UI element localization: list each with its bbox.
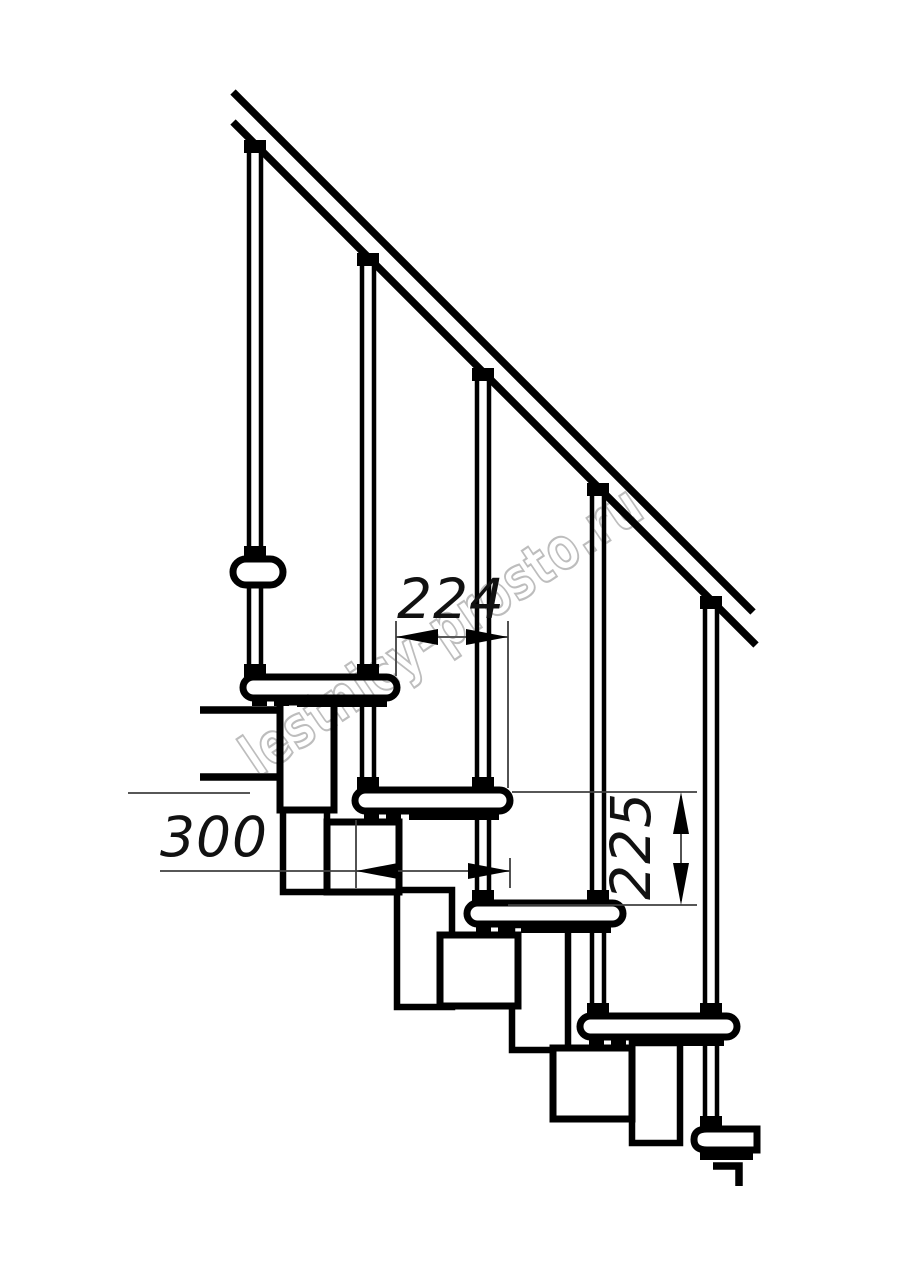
baluster-1 <box>249 150 261 677</box>
baluster-3-tread-connector <box>472 890 494 903</box>
support-module-2 <box>327 822 399 892</box>
baluster-2-tread-connector <box>357 777 379 790</box>
baluster-4 <box>592 492 604 1016</box>
tread-2 <box>355 790 510 811</box>
tread-bracket <box>233 559 283 585</box>
baluster-3-rail-connector <box>472 368 494 381</box>
baluster-1-tread-connector <box>244 664 266 677</box>
baluster-5-rail-connector <box>700 596 722 609</box>
baluster-1-bracket-connector <box>244 546 266 559</box>
drawing-svg: 224 300 225 lestnicy-prosto.ru <box>0 0 914 1280</box>
baluster-1-rail-connector <box>244 140 266 153</box>
baluster-3-cross-connector <box>472 777 494 790</box>
back-module-1 <box>283 808 327 892</box>
dimension-225: 225 <box>508 792 697 905</box>
baluster-5-tread-connector <box>700 1116 722 1129</box>
tread-4 <box>580 1016 737 1037</box>
baluster-2-rail-connector <box>357 253 379 266</box>
dimension-225-arrow-top <box>673 792 689 834</box>
tread-5 <box>694 1129 757 1150</box>
staircase-technical-drawing: 224 300 225 lestnicy-prosto.ru <box>0 0 914 1280</box>
dimension-225-label: 225 <box>599 792 663 900</box>
dimension-300-label: 300 <box>160 805 268 869</box>
support-module-3 <box>440 935 518 1006</box>
tread-3 <box>467 903 623 924</box>
back-module-4 <box>632 1043 680 1143</box>
handrail-top-edge <box>233 92 753 612</box>
baluster-5 <box>705 607 717 1129</box>
tread-mount-5-hook <box>713 1166 739 1186</box>
baluster-4-tread-connector <box>587 1003 609 1016</box>
support-module-4 <box>553 1048 632 1119</box>
baluster-5-cross-connector <box>700 1003 722 1016</box>
dimension-225-arrow-bottom <box>673 863 689 905</box>
